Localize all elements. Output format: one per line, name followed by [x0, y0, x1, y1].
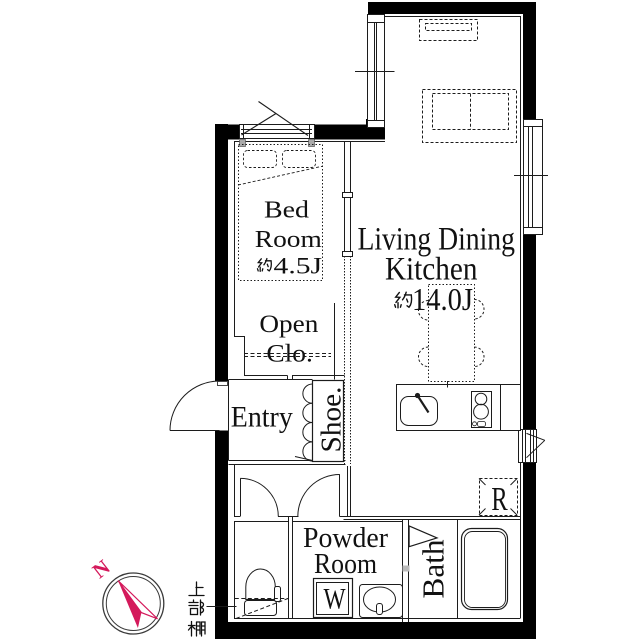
svg-text:Bath: Bath — [416, 539, 451, 598]
svg-text:W: W — [323, 582, 346, 615]
svg-text:Open: Open — [259, 309, 318, 338]
svg-text:R: R — [491, 481, 508, 518]
svg-text:Clo.: Clo. — [266, 339, 313, 368]
svg-text:14.0J: 14.0J — [412, 281, 473, 317]
svg-text:4.5J: 4.5J — [274, 254, 323, 279]
svg-text:Room: Room — [314, 549, 377, 580]
svg-text:Entry: Entry — [231, 402, 293, 434]
svg-text:Room: Room — [255, 226, 322, 253]
svg-text:Bed: Bed — [264, 197, 309, 224]
svg-text:Shoe.: Shoe. — [316, 387, 348, 453]
